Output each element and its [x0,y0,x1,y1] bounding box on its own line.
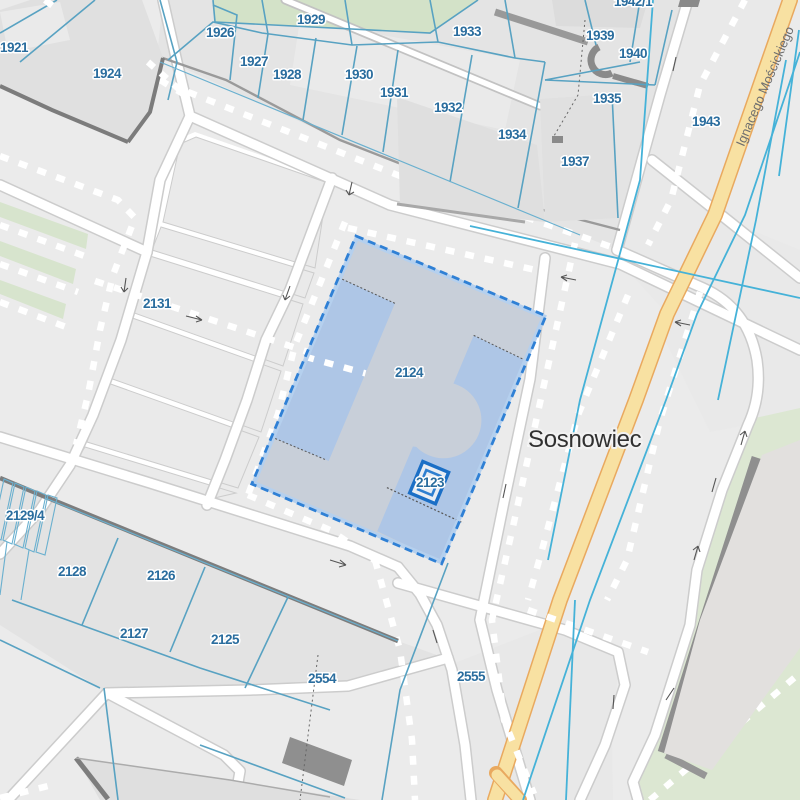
svg-text:2131: 2131 [143,296,172,311]
svg-text:1924: 1924 [93,66,122,81]
svg-text:2125: 2125 [211,632,240,647]
svg-text:1927: 1927 [240,54,268,69]
svg-text:2126: 2126 [147,568,176,583]
svg-text:1942/1: 1942/1 [614,0,653,9]
svg-text:1931: 1931 [380,85,409,100]
svg-text:1934: 1934 [498,127,527,142]
svg-text:2554: 2554 [308,671,337,686]
svg-text:1926: 1926 [206,25,235,40]
svg-text:1921: 1921 [0,40,29,55]
svg-text:1930: 1930 [345,67,373,82]
svg-text:1943: 1943 [692,114,721,129]
svg-text:1932: 1932 [434,100,462,115]
svg-text:2124: 2124 [395,365,424,380]
svg-text:2123: 2123 [416,475,445,490]
svg-text:1939: 1939 [586,28,614,43]
svg-text:1928: 1928 [273,67,302,82]
svg-text:2129/4: 2129/4 [6,508,45,523]
svg-text:2128: 2128 [58,564,87,579]
svg-text:1929: 1929 [297,12,325,27]
svg-text:2127: 2127 [120,626,148,641]
svg-text:1937: 1937 [561,154,589,169]
svg-text:2555: 2555 [457,669,486,684]
svg-text:Sosnowiec: Sosnowiec [528,426,642,453]
svg-text:1933: 1933 [453,24,482,39]
svg-text:1940: 1940 [619,46,647,61]
svg-text:1935: 1935 [593,91,622,106]
